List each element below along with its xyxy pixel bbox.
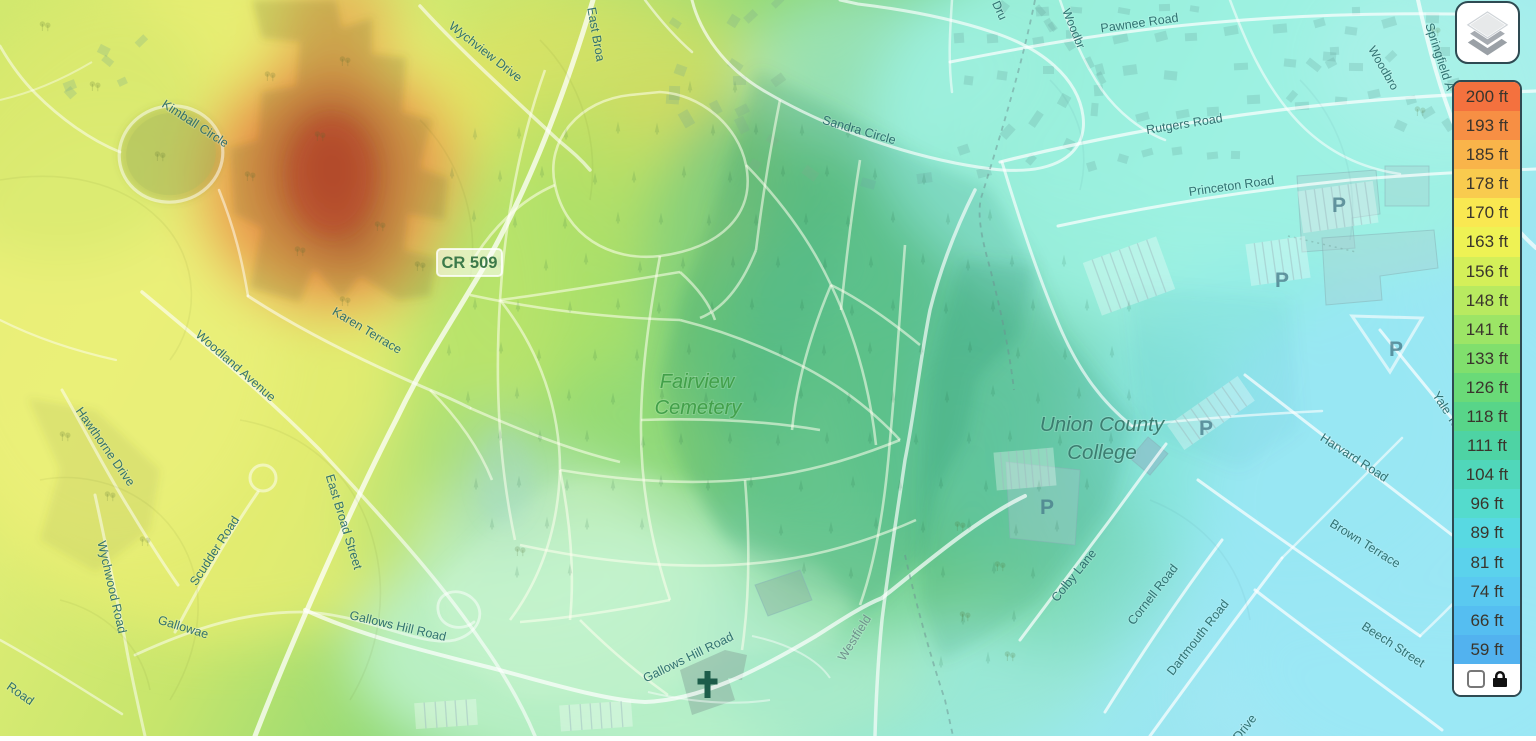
svg-text:P: P xyxy=(1332,194,1346,217)
svg-text:CR 509: CR 509 xyxy=(442,254,498,272)
svg-text:College: College xyxy=(1067,441,1137,464)
svg-text:P: P xyxy=(1199,417,1213,440)
svg-text:Union County: Union County xyxy=(1040,413,1166,436)
svg-text:Cemetery: Cemetery xyxy=(655,397,743,419)
svg-text:Fairview: Fairview xyxy=(660,371,736,393)
svg-text:P: P xyxy=(1389,338,1403,361)
svg-text:P: P xyxy=(1275,269,1289,292)
svg-text:P: P xyxy=(1040,496,1054,519)
